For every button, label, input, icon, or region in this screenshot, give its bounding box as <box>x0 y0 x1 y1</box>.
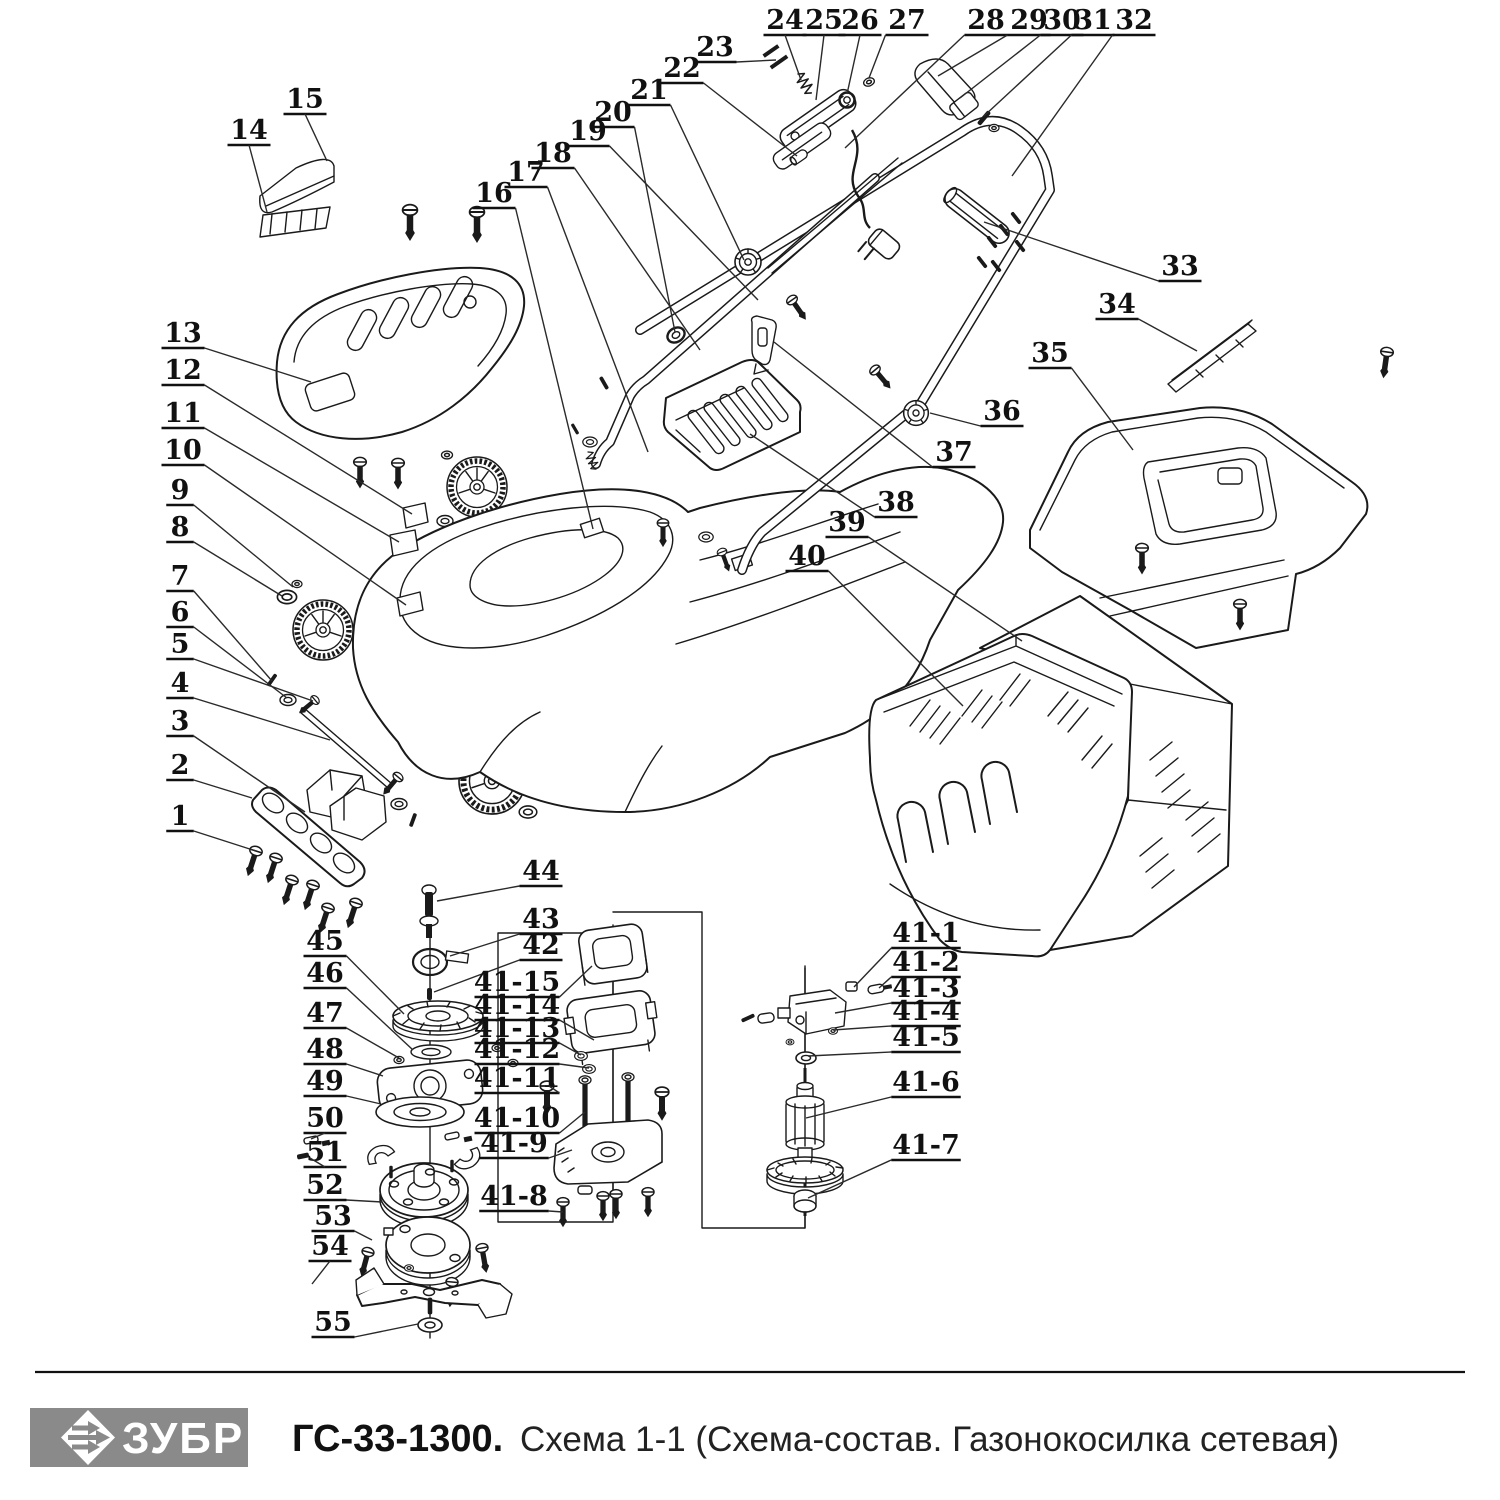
part-number-47: 47 <box>306 998 344 1029</box>
part-number-25: 25 <box>805 5 843 36</box>
part-number-15: 15 <box>286 84 324 115</box>
part-number-24: 24 <box>766 5 804 36</box>
leader-line-17 <box>548 187 649 452</box>
wheel-left <box>293 600 353 660</box>
leader-line-36 <box>930 413 981 426</box>
rear-rail <box>1168 320 1256 392</box>
leader-line-25 <box>816 35 824 100</box>
part-number-38: 38 <box>877 487 915 518</box>
leader-line-41-8 <box>549 1211 563 1212</box>
footer: ЗУБР ГС-33-1300. Схема 1-1 (Схема-состав… <box>30 1372 1465 1467</box>
leader-line-23 <box>737 60 777 62</box>
part-label-group-22: 22 <box>661 53 798 156</box>
leader-line-2 <box>194 780 252 798</box>
leader-line-49 <box>347 1096 382 1104</box>
part-number-20: 20 <box>594 97 632 128</box>
part-number-12: 12 <box>164 355 202 386</box>
part-number-37: 37 <box>935 437 973 468</box>
part-number-45: 45 <box>306 926 344 957</box>
leader-line-16 <box>516 208 594 529</box>
handle-knob-left <box>735 249 761 275</box>
part-number-39: 39 <box>828 507 866 538</box>
leader-line-9 <box>194 505 293 587</box>
part-label-group-54: 54 <box>309 1231 352 1284</box>
leader-line-30 <box>960 35 1041 98</box>
part-number-2: 2 <box>171 750 190 781</box>
leader-line-55 <box>355 1324 419 1337</box>
part-label-group-24: 24 <box>764 5 807 80</box>
leader-line-27 <box>869 35 886 78</box>
switch-assembly <box>762 44 999 172</box>
part-number-49: 49 <box>306 1066 344 1097</box>
part-number-3: 3 <box>171 706 190 737</box>
part-number-55: 55 <box>314 1307 352 1338</box>
part-number-41-7: 41-7 <box>892 1130 960 1161</box>
part-number-18: 18 <box>534 138 572 169</box>
leader-line-26 <box>847 35 860 94</box>
leader-line-20 <box>635 127 676 332</box>
part-label-group-34: 34 <box>1096 289 1198 351</box>
part-number-46: 46 <box>306 958 344 989</box>
part-number-4: 4 <box>171 668 190 699</box>
part-label-group-41-11: 41-11 <box>474 1063 560 1094</box>
leader-line-45 <box>347 956 405 1014</box>
part-label-group-18: 18 <box>532 138 701 350</box>
leader-line-14 <box>249 145 267 212</box>
parts-diagram-page: 1234567891011121314151617181920212223242… <box>0 0 1500 1500</box>
leader-line-5 <box>194 659 313 701</box>
brand-name: ЗУБР <box>122 1414 244 1463</box>
exploded-diagram: 1234567891011121314151617181920212223242… <box>0 0 1500 1500</box>
part-number-53: 53 <box>314 1201 352 1232</box>
upper-handle <box>640 121 1050 408</box>
part-number-7: 7 <box>171 561 190 592</box>
part-number-51: 51 <box>306 1137 344 1168</box>
leader-line-1 <box>194 831 256 851</box>
leader-line-53 <box>355 1231 373 1240</box>
leader-line-52 <box>347 1200 383 1202</box>
part-number-34: 34 <box>1098 289 1136 320</box>
part-number-41-6: 41-6 <box>892 1067 960 1098</box>
part-number-13: 13 <box>164 318 202 349</box>
fan-pulley <box>393 1001 483 1041</box>
motor-armature-column <box>741 966 893 1228</box>
handle-knob-right <box>904 401 929 426</box>
leader-line-10 <box>205 465 407 605</box>
part-number-40: 40 <box>788 541 826 572</box>
leader-line-6 <box>194 627 287 698</box>
part-number-41-1: 41-1 <box>892 918 960 949</box>
top-bearing <box>796 1052 816 1064</box>
part-label-group-36: 36 <box>930 396 1024 427</box>
part-label-group-52: 52 <box>304 1170 383 1202</box>
flap-latch <box>752 316 777 374</box>
leader-line-48 <box>347 1064 384 1076</box>
part-number-35: 35 <box>1031 338 1069 369</box>
spindle-bolt <box>420 885 438 938</box>
seal-ring <box>376 1097 464 1127</box>
leader-line-18 <box>575 168 701 350</box>
part-label-group-41-6: 41-6 <box>806 1067 961 1118</box>
part-number-42: 42 <box>522 930 560 961</box>
part-number-23: 23 <box>696 32 734 63</box>
part-number-8: 8 <box>171 512 190 543</box>
switch-bolt <box>762 44 788 69</box>
part-label-group-15: 15 <box>284 84 328 161</box>
leader-line-47 <box>347 1028 400 1058</box>
model-number: ГС-33-1300. <box>292 1418 503 1460</box>
part-number-41-12: 41-12 <box>474 1034 560 1065</box>
part-number-41-5: 41-5 <box>892 1022 960 1053</box>
part-number-27: 27 <box>888 5 926 36</box>
leader-line-41-5 <box>808 1052 891 1056</box>
part-number-26: 26 <box>841 5 879 36</box>
part-number-32: 32 <box>1115 5 1153 36</box>
part-label-group-23: 23 <box>694 32 777 63</box>
leader-line-54 <box>312 1261 330 1284</box>
part-number-41-9: 41-9 <box>480 1128 548 1159</box>
part-label-group-44: 44 <box>437 856 563 901</box>
schema-title: Схема 1-1 (Схема-состав. Газонокосилка с… <box>520 1420 1339 1459</box>
leader-line-19 <box>610 146 759 300</box>
part-number-50: 50 <box>306 1103 344 1134</box>
power-cord-plug <box>852 130 902 272</box>
part-number-10: 10 <box>164 435 202 466</box>
part-label-group-51: 51 <box>304 1137 347 1168</box>
part-label-group-1: 1 <box>166 801 256 851</box>
part-number-44: 44 <box>522 856 560 887</box>
part-number-9: 9 <box>171 475 190 506</box>
part-number-11: 11 <box>164 398 202 429</box>
leader-line-21 <box>671 105 745 260</box>
part-number-14: 14 <box>230 115 268 146</box>
part-label-group-55: 55 <box>312 1307 419 1338</box>
part-label-group-41-8: 41-8 <box>479 1181 563 1212</box>
part-number-48: 48 <box>306 1034 344 1065</box>
part-number-41-11: 41-11 <box>474 1063 560 1094</box>
leader-line-44 <box>437 886 520 901</box>
leader-line-3 <box>194 736 305 812</box>
part-number-5: 5 <box>171 629 190 660</box>
handle-grip <box>941 185 1013 248</box>
part-label-group-2: 2 <box>166 750 252 798</box>
leader-line-15 <box>305 114 327 161</box>
part-number-1: 1 <box>171 801 190 832</box>
part-label-group-21: 21 <box>628 75 745 260</box>
leader-line-31 <box>984 35 1072 116</box>
part-number-54: 54 <box>311 1231 349 1262</box>
part-number-31: 31 <box>1074 5 1112 36</box>
spacer-ring <box>411 1045 451 1059</box>
motor-cover <box>277 205 525 439</box>
part-label-group-26: 26 <box>839 5 882 94</box>
part-number-28: 28 <box>967 5 1005 36</box>
part-number-36: 36 <box>983 396 1021 427</box>
part-number-29: 29 <box>1010 5 1048 36</box>
handle-cover-part <box>260 159 334 237</box>
blade <box>356 1268 512 1318</box>
part-number-21: 21 <box>630 75 668 106</box>
leader-line-22 <box>704 83 798 156</box>
part-number-52: 52 <box>306 1170 344 1201</box>
part-number-6: 6 <box>171 597 190 628</box>
brush-holder <box>778 990 846 1045</box>
bottom-bearing <box>794 1190 816 1212</box>
part-label-group-50: 50 <box>304 1103 347 1139</box>
leader-line-34 <box>1139 319 1198 351</box>
part-number-22: 22 <box>663 53 701 84</box>
leader-line-32 <box>1012 35 1113 176</box>
leader-line-8 <box>194 542 282 596</box>
part-number-41-8: 41-8 <box>480 1181 548 1212</box>
part-number-33: 33 <box>1161 251 1199 282</box>
bearing-plate <box>554 1120 662 1184</box>
leader-line-43 <box>450 934 520 956</box>
